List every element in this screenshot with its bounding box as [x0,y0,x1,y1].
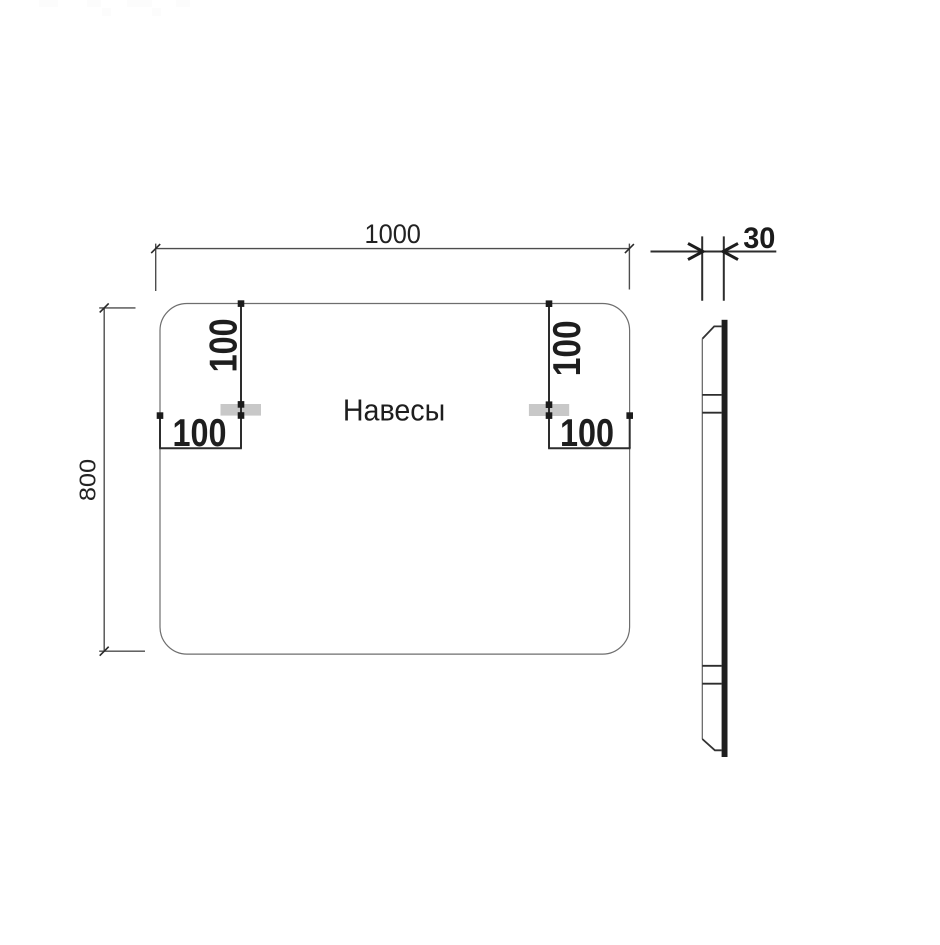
svg-text:800: 800 [75,459,101,501]
svg-text:Навесы: Навесы [343,394,445,428]
svg-text:100: 100 [544,320,588,376]
svg-text:100: 100 [202,318,246,372]
svg-text:100: 100 [173,411,227,455]
svg-text:30: 30 [743,223,775,255]
svg-text:100: 100 [560,411,614,455]
svg-text:1000: 1000 [364,218,420,249]
